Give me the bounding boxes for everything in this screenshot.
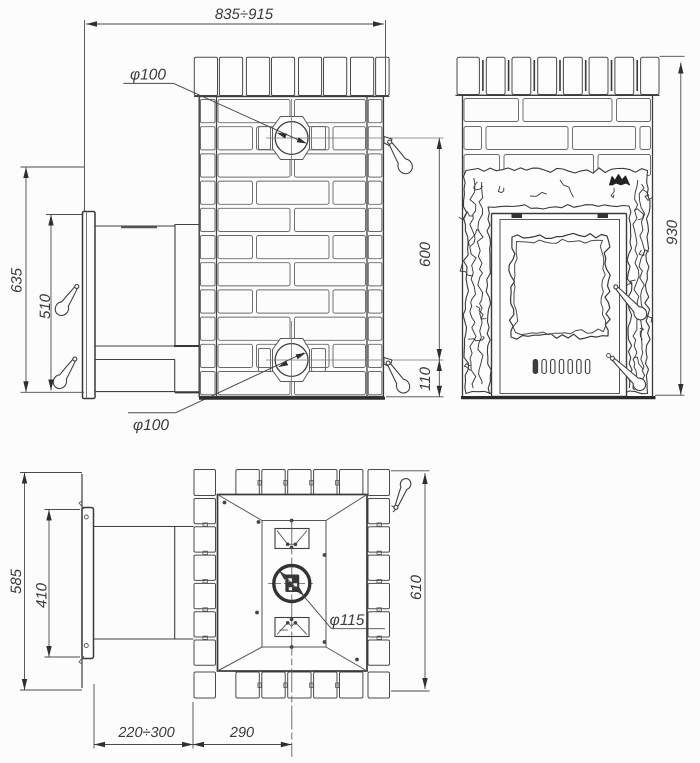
svg-text:φ115: φ115 <box>330 612 365 629</box>
svg-text:φ100: φ100 <box>133 417 169 434</box>
svg-text:930: 930 <box>664 219 681 245</box>
svg-text:110: 110 <box>417 366 434 391</box>
svg-text:585: 585 <box>8 568 25 594</box>
svg-text:835÷915: 835÷915 <box>215 6 274 23</box>
svg-text:410: 410 <box>34 582 51 608</box>
svg-text:220÷300: 220÷300 <box>117 725 174 741</box>
svg-text:610: 610 <box>408 574 425 600</box>
svg-text:φ100: φ100 <box>130 67 166 84</box>
svg-text:290: 290 <box>229 725 254 741</box>
svg-text:635: 635 <box>9 267 26 293</box>
svg-text:510: 510 <box>37 293 54 319</box>
svg-text:600: 600 <box>417 241 434 267</box>
